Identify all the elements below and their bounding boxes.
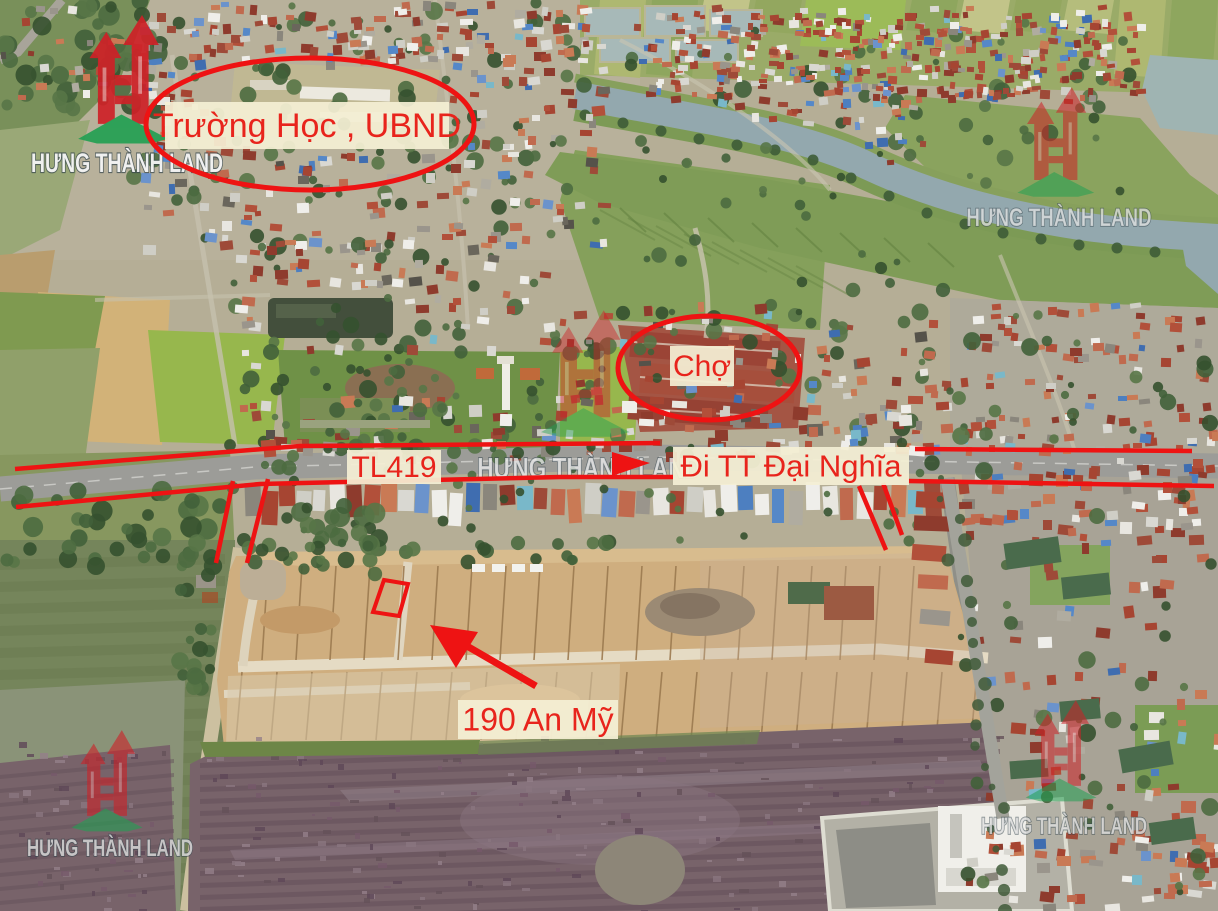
svg-text:Trường Học , UBND: Trường Học , UBND: [153, 107, 461, 145]
svg-text:HƯNG THÀNH LAND: HƯNG THÀNH LAND: [27, 835, 193, 862]
svg-text:Chợ: Chợ: [673, 350, 731, 383]
svg-text:Đi TT Đại Nghĩa: Đi TT Đại Nghĩa: [680, 449, 902, 484]
svg-text:HƯNG THÀNH LAND: HƯNG THÀNH LAND: [966, 203, 1151, 231]
svg-text:TL419: TL419: [351, 451, 436, 484]
svg-text:HƯNG THÀNH LAND: HƯNG THÀNH LAND: [981, 813, 1147, 840]
svg-text:190 An Mỹ: 190 An Mỹ: [462, 701, 613, 737]
